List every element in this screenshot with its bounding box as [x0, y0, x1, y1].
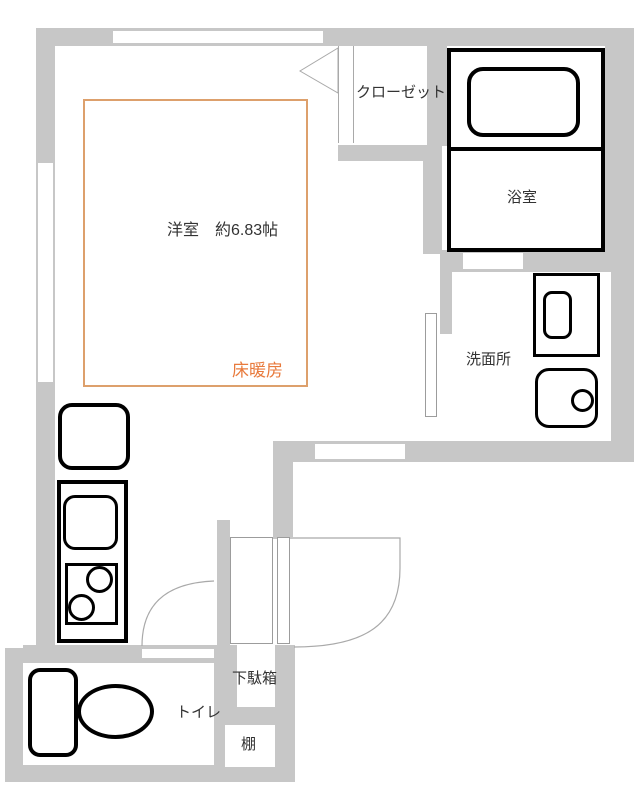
right-wall-upper [605, 28, 634, 260]
closet-door-triangle [300, 48, 338, 93]
right-wall-lower [611, 252, 634, 462]
washroom-door-panel [425, 313, 437, 417]
kitchen-door-opening [142, 649, 214, 658]
vanity-sink [543, 291, 572, 339]
toilet-tank [28, 668, 78, 757]
porch-left-wall [273, 441, 293, 539]
main-room-label: 洋室 約6.83帖 [167, 222, 278, 240]
entrance-door-panel-wide [230, 537, 273, 644]
toilet-label: トイレ [176, 705, 221, 722]
floor-heating-label: 床暖房 [232, 362, 283, 381]
burner-left [68, 594, 95, 621]
bathtub [467, 67, 580, 137]
floor-plan: 洋室 約6.83帖 床暖房 クローゼット 浴室 洗面所 トイレ 下駄箱 棚 [0, 0, 636, 800]
toilet-door-swing-arc [142, 581, 214, 646]
closet-label: クローゼット [356, 85, 446, 102]
bathroom-divider [447, 147, 605, 151]
entrance-door-swing-arc [293, 538, 400, 647]
burner-right [86, 566, 113, 593]
bathroom-label: 浴室 [507, 190, 537, 207]
corridor-wall [423, 146, 442, 254]
porch-window [315, 444, 405, 459]
bottom-wall [5, 765, 295, 782]
shoe-cabinet-label: 下駄箱 [232, 671, 277, 688]
washroom-bottom-wall [405, 441, 634, 462]
washroom-west-wall [440, 270, 452, 334]
floor-heating-zone [83, 99, 308, 387]
shelf-label: 棚 [241, 737, 256, 754]
kitchen-sink [63, 495, 118, 550]
washing-machine-drum [571, 389, 594, 412]
toilet-bowl [77, 684, 154, 739]
top-window [113, 31, 323, 43]
entrance-door-panel-narrow [277, 537, 290, 644]
kitchen-east-wall [217, 520, 230, 648]
outer-corner-wall [5, 648, 23, 782]
refrigerator-space [58, 403, 130, 470]
bathroom-door-opening [463, 253, 523, 269]
washroom-label: 洗面所 [466, 352, 511, 369]
left-window [38, 163, 53, 382]
